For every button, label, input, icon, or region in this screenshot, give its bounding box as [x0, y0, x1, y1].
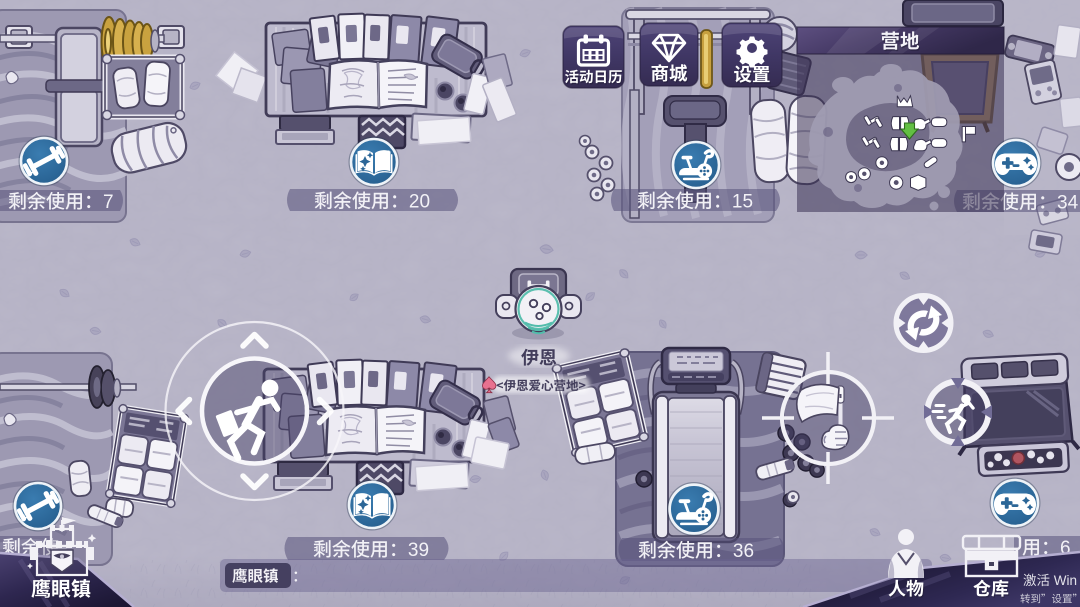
svg-text:20: 20 — [409, 192, 430, 213]
svg-text:15: 15 — [732, 192, 753, 213]
svg-text:7: 7 — [103, 192, 114, 213]
svg-text:36: 36 — [733, 541, 754, 562]
svg-text:39: 39 — [408, 540, 429, 561]
svg-text:34: 34 — [1057, 193, 1079, 214]
svg-text:Win: Win — [1050, 573, 1077, 588]
